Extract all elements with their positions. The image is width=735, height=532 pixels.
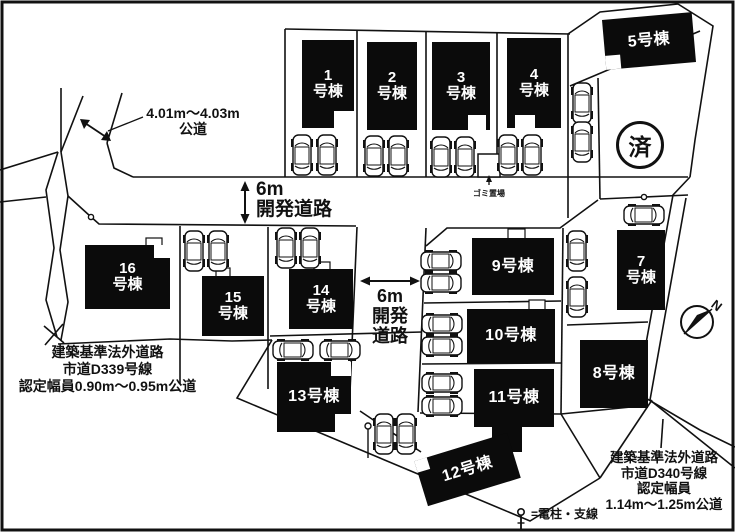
garbage-area-icon xyxy=(478,154,500,185)
car-icon xyxy=(363,136,385,176)
car-icon xyxy=(422,313,462,335)
site-plan: 1 号棟 2 号棟 3 号棟 4 号棟 5号棟 7 号棟 8号棟 9号棟 10号… xyxy=(0,0,735,532)
building-15: 15 号棟 xyxy=(202,276,264,336)
car-icon xyxy=(571,122,593,162)
building-8-label: 8号棟 xyxy=(593,365,635,383)
dev-road-horizontal-label: 6m 開発道路 xyxy=(256,180,356,220)
car-icon xyxy=(320,339,360,361)
car-icon xyxy=(291,135,313,175)
width-arrow-vertical xyxy=(241,181,250,224)
building-1-label: 1 号棟 xyxy=(313,68,343,101)
building-12-label: 12号棟 xyxy=(440,454,495,486)
car-icon xyxy=(316,135,338,175)
building-15-label: 15 号棟 xyxy=(218,290,248,323)
car-icon xyxy=(421,250,461,272)
building-notch xyxy=(605,55,621,70)
legend-pole-label: =電柱・支線 xyxy=(531,505,631,522)
building-8: 8号棟 xyxy=(580,340,648,408)
car-icon xyxy=(624,204,664,226)
building-14-label: 14 号棟 xyxy=(306,283,336,316)
building-5-label: 5号棟 xyxy=(627,30,671,51)
car-icon xyxy=(430,137,452,177)
building-10-label: 10号棟 xyxy=(485,327,537,345)
car-icon xyxy=(566,277,588,317)
building-notch xyxy=(468,115,486,130)
building-notch xyxy=(331,362,351,376)
building-1: 1 号棟 xyxy=(302,40,354,128)
building-notch xyxy=(515,115,535,128)
car-icon xyxy=(275,228,297,268)
car-icon xyxy=(299,228,321,268)
car-icon xyxy=(571,83,593,123)
building-7-label: 7 号棟 xyxy=(626,254,656,287)
public-road-width-label: 4.01m〜4.03m 公道 xyxy=(138,105,248,137)
car-icon xyxy=(273,339,313,361)
building-2: 2 号棟 xyxy=(367,42,417,130)
building-notch xyxy=(334,111,354,128)
width-arrow-horizontal xyxy=(360,277,420,286)
compass-icon xyxy=(681,306,713,338)
car-icon xyxy=(207,231,229,271)
building-11-label: 11号棟 xyxy=(489,389,540,407)
car-icon xyxy=(497,135,519,175)
building-4-label: 4 号棟 xyxy=(519,67,549,100)
road-d339-note: 建築基準法外道路 市道D339号線 認定幅員0.90m〜0.95m公道 xyxy=(10,344,205,395)
car-icon xyxy=(521,135,543,175)
building-4: 4 号棟 xyxy=(507,38,561,128)
building-11: 11号棟 xyxy=(474,369,554,427)
car-icon xyxy=(422,395,462,417)
building-14: 14 号棟 xyxy=(289,269,353,329)
building-3-label: 3 号棟 xyxy=(446,70,476,103)
building-3: 3 号棟 xyxy=(432,42,490,130)
road-d340-note: 建築基準法外道路 市道D340号線 認定幅員 1.14m〜1.25m公道 xyxy=(593,450,735,512)
car-icon xyxy=(373,414,395,454)
width-arrow-top-road xyxy=(80,117,143,141)
car-icon xyxy=(183,231,205,271)
car-icon xyxy=(387,136,409,176)
building-16: 16 号棟 xyxy=(85,245,170,309)
car-icon xyxy=(422,372,462,394)
building-9-label: 9号棟 xyxy=(492,258,534,276)
building-9: 9号棟 xyxy=(472,238,554,295)
car-icon xyxy=(421,272,461,294)
building-16-label: 16 号棟 xyxy=(112,261,142,294)
building-2-label: 2 号棟 xyxy=(377,70,407,103)
building-13-label: 13号棟 xyxy=(288,388,340,406)
dev-road-vertical-label: 6m 開発 道路 xyxy=(366,286,414,346)
building-7: 7 号棟 xyxy=(617,230,665,310)
building-10: 10号棟 xyxy=(467,309,555,363)
building-notch xyxy=(335,414,351,432)
garbage-area-label: ゴミ置場 xyxy=(460,188,518,199)
building-5: 5号棟 xyxy=(602,12,696,70)
car-icon xyxy=(395,414,417,454)
car-icon xyxy=(566,231,588,271)
building-notch xyxy=(414,457,430,472)
car-icon xyxy=(454,137,476,177)
sold-mark: 済 xyxy=(616,121,664,169)
building-13: 13号棟 xyxy=(277,362,351,432)
car-icon xyxy=(422,335,462,357)
building-notch xyxy=(154,245,170,258)
